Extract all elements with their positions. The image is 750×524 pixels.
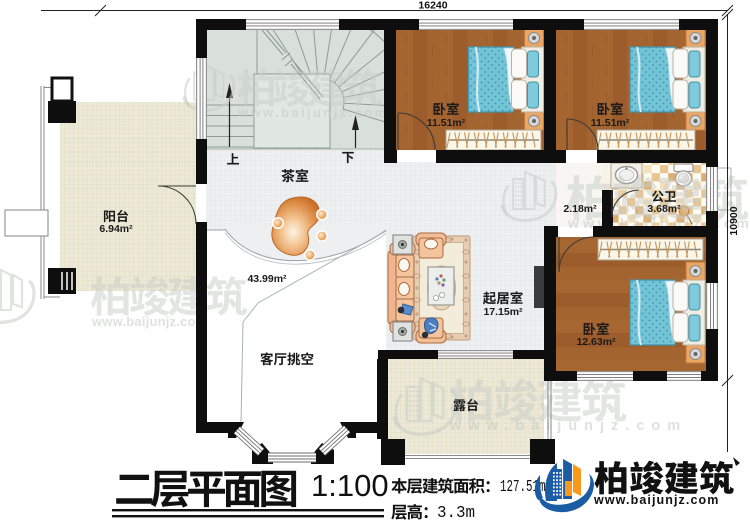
svg-text:16240: 16240 xyxy=(418,0,447,12)
svg-text:11.51m²: 11.51m² xyxy=(427,117,466,129)
svg-text:2.18m²: 2.18m² xyxy=(563,203,597,215)
svg-text:43.99m²: 43.99m² xyxy=(247,273,287,285)
svg-text:3.68m²: 3.68m² xyxy=(647,203,681,215)
svg-text:127.51m²: 127.51m² xyxy=(500,477,552,496)
svg-text:www.baijunjz.com: www.baijunjz.com xyxy=(237,105,389,120)
svg-text:www.baijunjz.com: www.baijunjz.com xyxy=(449,418,687,434)
svg-text:12.63m²: 12.63m² xyxy=(576,336,616,348)
svg-text:6.94m²: 6.94m² xyxy=(99,223,133,235)
svg-text:1:100: 1:100 xyxy=(311,468,389,503)
svg-text:11.51m²: 11.51m² xyxy=(591,117,630,129)
svg-text:www.baijunjz.com: www.baijunjz.com xyxy=(593,493,719,507)
svg-text:10900: 10900 xyxy=(728,206,740,235)
svg-text:www.baijunjz.com: www.baijunjz.com xyxy=(91,314,207,329)
svg-text:3.3m: 3.3m xyxy=(437,503,475,522)
svg-text:17.15m²: 17.15m² xyxy=(483,306,523,318)
